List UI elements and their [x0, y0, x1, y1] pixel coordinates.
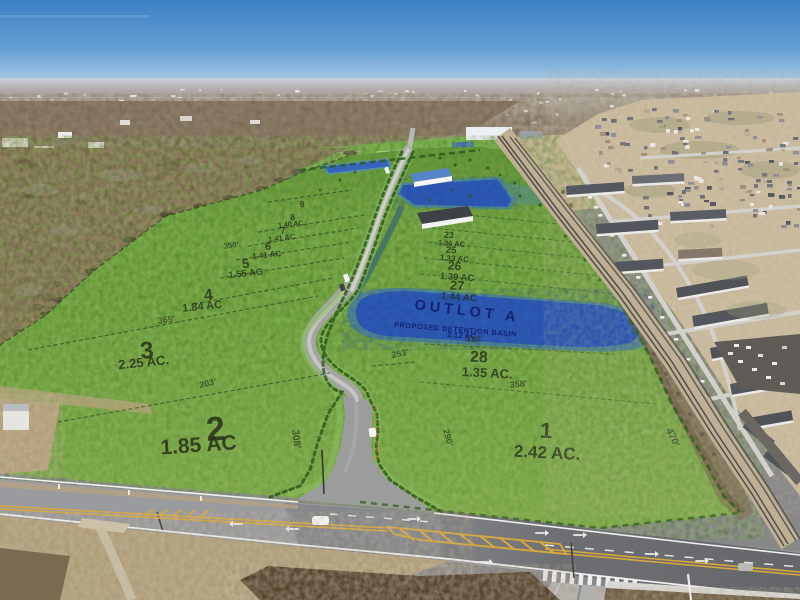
svg-text:358′: 358′	[509, 378, 527, 390]
svg-text:2.42 AC.: 2.42 AC.	[513, 442, 580, 464]
svg-text:1.35 AC.: 1.35 AC.	[462, 364, 514, 382]
svg-text:9: 9	[300, 200, 305, 209]
svg-text:1: 1	[539, 418, 553, 444]
svg-text:420′: 420′	[465, 333, 483, 345]
